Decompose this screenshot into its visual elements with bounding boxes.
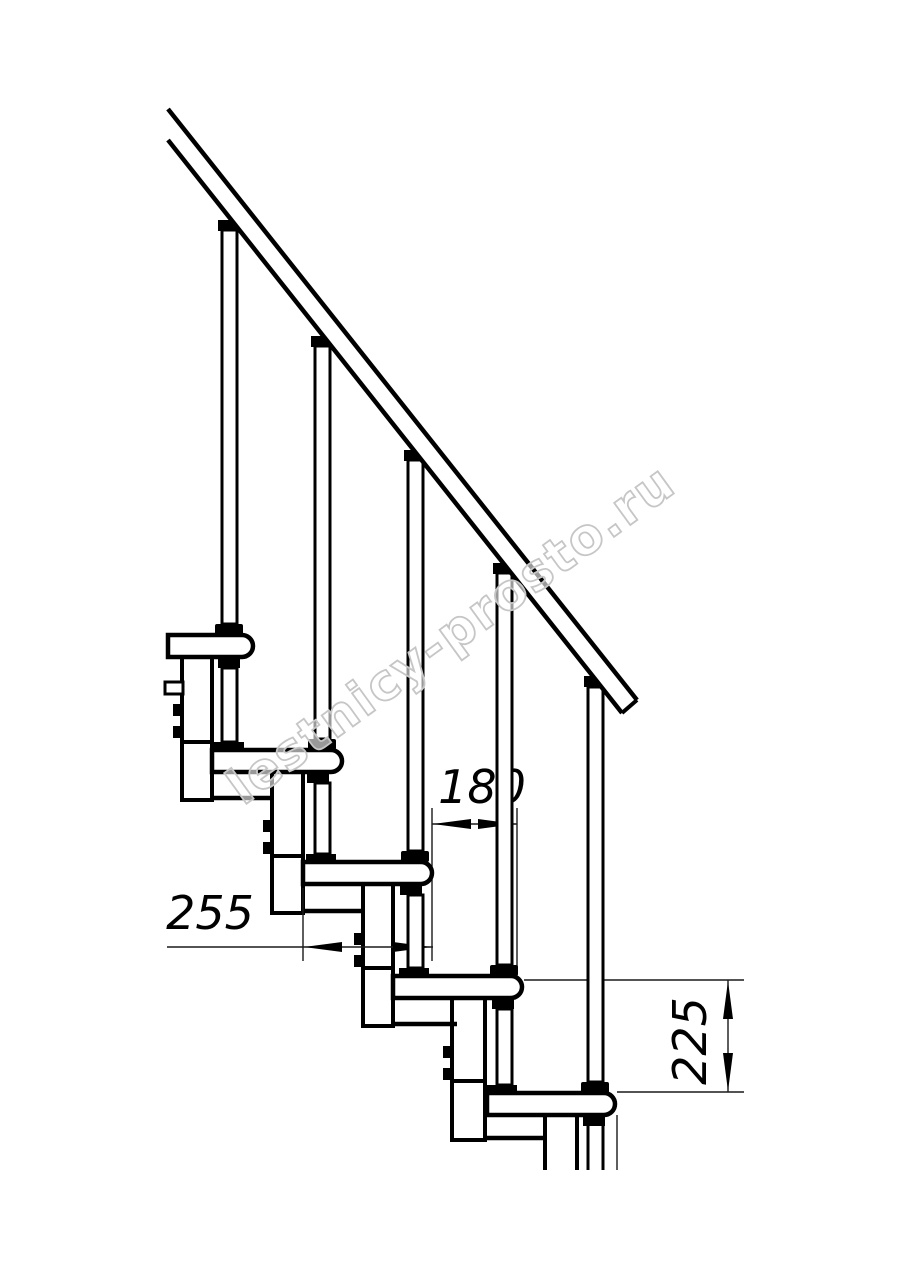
bolt-icon	[354, 933, 363, 945]
foot-flange	[487, 1085, 517, 1093]
support-module-4	[443, 998, 485, 1140]
support-module-3	[354, 884, 393, 1026]
bolt-icon	[173, 704, 182, 716]
staircase-drawing-page: 255 180 225	[0, 0, 914, 1280]
nut	[307, 772, 329, 783]
nut	[400, 884, 422, 895]
tread-collar	[215, 624, 243, 635]
foot-flange	[399, 968, 429, 976]
bolt-icon	[443, 1068, 452, 1080]
baluster-1	[214, 220, 244, 750]
foot-flange	[214, 742, 244, 750]
baluster-2	[306, 336, 336, 862]
tread-collar	[401, 851, 429, 862]
bolt-icon	[263, 842, 272, 854]
arrow-up-icon	[723, 981, 733, 1019]
tread-collar	[581, 1082, 609, 1093]
nut	[583, 1115, 605, 1126]
tread-collar	[490, 965, 518, 976]
arrow-down-icon	[723, 1053, 733, 1091]
arrow-left-icon	[433, 819, 471, 829]
bolt-icon	[263, 820, 272, 832]
staircase-side-view-drawing: 255 180 225	[0, 0, 914, 1280]
baluster-3	[399, 450, 429, 976]
bolt-icon	[354, 955, 363, 967]
foot-flange	[306, 854, 336, 862]
upper-bracket-stub	[165, 682, 183, 694]
support-module-5	[545, 1115, 577, 1170]
tread-4	[393, 976, 522, 998]
arrow-left-icon	[304, 942, 342, 952]
tread-1	[168, 635, 253, 657]
tread-3	[303, 862, 432, 884]
dimension-label-255: 255	[166, 886, 254, 940]
dimension-225: 225	[524, 980, 744, 1092]
nut	[218, 657, 240, 668]
baluster-4	[487, 563, 518, 1093]
bolt-icon	[443, 1046, 452, 1058]
nut	[492, 998, 514, 1009]
tread-5	[487, 1093, 615, 1115]
dimension-label-225: 225	[663, 997, 717, 1085]
bolt-icon	[173, 726, 182, 738]
support-module-1	[165, 657, 212, 800]
